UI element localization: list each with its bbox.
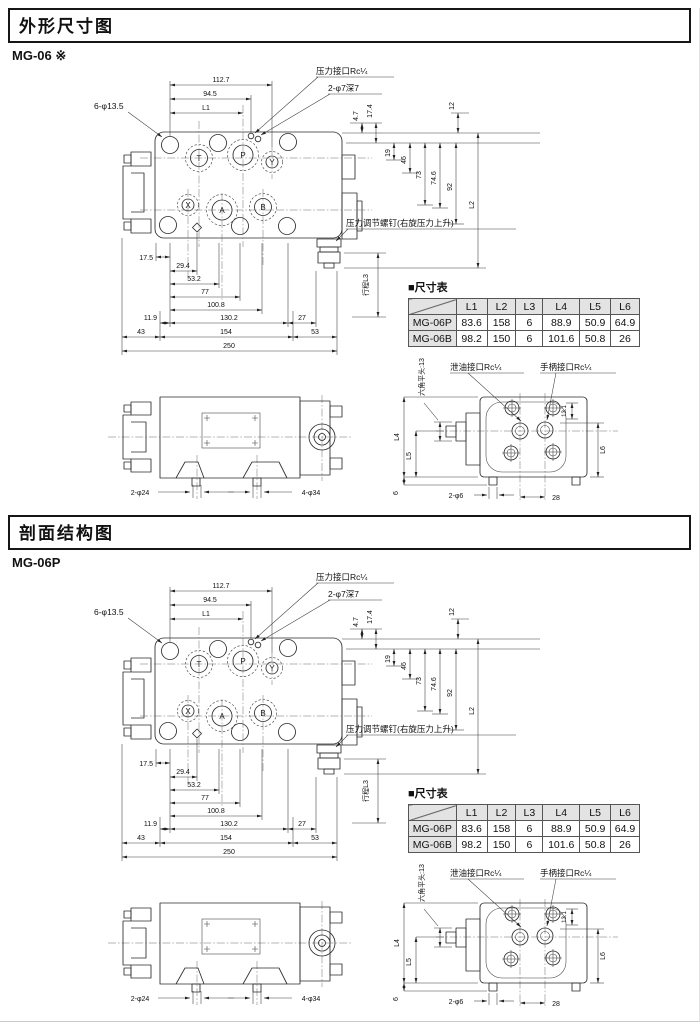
dim-L1: L1 (202, 611, 210, 618)
gasket-pattern (202, 919, 260, 954)
dim-L1: L1 (202, 105, 210, 112)
gasket-pattern (202, 413, 260, 448)
adjust-screw-label: 压力调节螺钉(右旋压力上升) (346, 218, 454, 228)
dim-94-5: 94.5 (203, 91, 217, 98)
table-header-cell: L3 (516, 805, 543, 821)
dim-53: 53 (311, 329, 319, 336)
section-header: 剖面结构图 (8, 515, 691, 550)
top-view: T P Y X A B (123, 638, 362, 774)
dim-27: 27 (298, 315, 306, 322)
table-cell: 64.9 (611, 315, 640, 331)
dim-77: 77 (201, 795, 209, 802)
stroke-label: 行程L3 (361, 274, 370, 296)
table-corner-cell (409, 805, 457, 821)
dim-12: 12 (449, 102, 456, 110)
table-header-row: L1 L2 L3 L4 L5 L6 (409, 805, 640, 821)
dim-46: 46 (401, 156, 408, 164)
end-body-outline (480, 397, 587, 477)
port-label-a: A (219, 712, 225, 721)
table-cell: 83.6 (456, 315, 487, 331)
dim-43: 43 (137, 835, 145, 842)
tap-holes-label: 2-φ7深7 (328, 589, 359, 599)
dim-29-4: 29.4 (176, 263, 190, 270)
adjust-screw-callout: 压力调节螺钉(右旋压力上升) (336, 724, 516, 747)
mount-foot (176, 462, 204, 478)
hex-head-label: 六角平头:13 (417, 864, 426, 902)
dim-13-1: 13.1 (562, 405, 568, 417)
mounting-holes (160, 134, 297, 235)
table-cell: 88.9 (543, 315, 580, 331)
dim-12: 12 (449, 608, 456, 616)
dimension-table-block: ■尺寸表 L1 L2 L3 L4 L5 L6 MG-06P 83.6 158 6… (408, 279, 640, 347)
dim-L2: L2 (469, 201, 476, 209)
tap-hole (255, 136, 261, 142)
table-cell: 50.9 (580, 821, 611, 837)
mounting-holes (160, 640, 297, 741)
table-header-cell: L6 (611, 299, 640, 315)
table-cell: 83.6 (456, 821, 487, 837)
dim-130-2: 130.2 (220, 821, 238, 828)
dim-130-2: 130.2 (220, 315, 238, 322)
table-header-row: L1 L2 L3 L4 L5 L6 (409, 299, 640, 315)
dim-92: 92 (447, 183, 454, 191)
dim-94-5: 94.5 (203, 597, 217, 604)
dim-250: 250 (223, 849, 235, 856)
mount-foot (243, 462, 287, 478)
stroke-label: 行程L3 (361, 780, 370, 802)
dim-L2: L2 (469, 707, 476, 715)
tap-hole (248, 133, 254, 139)
dim-46: 46 (401, 662, 408, 670)
handle-port-label: 手柄接口Rc¼ (540, 868, 592, 878)
table-row: MG-06B 98.2 150 6 101.6 50.8 26 (409, 837, 640, 853)
dim-112-7: 112.7 (213, 77, 230, 84)
table-row-header: MG-06P (409, 821, 457, 837)
bottom-dimensions: 17.5 29.4 53.2 77 100.8 11.9 130.2 27 43… (122, 739, 337, 861)
end-view (436, 899, 618, 1008)
table-header-cell: L1 (456, 299, 487, 315)
table-cell: 50.8 (580, 837, 611, 853)
table-cell: 158 (487, 821, 516, 837)
dim-L4: L4 (394, 939, 401, 947)
port-label-a: A (219, 206, 225, 215)
dim-73: 73 (416, 171, 423, 179)
pressure-port-label: 压力接口Rc¼ (316, 66, 368, 76)
dim-L6: L6 (600, 952, 607, 960)
table-row-header: MG-06P (409, 315, 457, 331)
top-view: T P Y X A B (123, 132, 362, 268)
mount-foot (243, 968, 287, 984)
table-cell: 150 (487, 331, 516, 347)
drawing-area: T P Y X A B (0, 571, 700, 1013)
bottom-pin (572, 477, 580, 485)
valve-body-outline (155, 132, 342, 238)
adjust-screw (317, 745, 341, 774)
dim-L5: L5 (406, 958, 413, 966)
adjust-screw (317, 239, 341, 268)
dim-28: 28 (552, 1001, 560, 1008)
table-cell: 98.2 (456, 837, 487, 853)
top-callouts: 6-φ13.5 压力接口Rc¼ 2-φ7深7 (94, 66, 394, 137)
dim-154: 154 (220, 329, 232, 336)
mid-ports (512, 422, 553, 439)
dim-53-2: 53.2 (187, 782, 201, 789)
table-cell: 101.6 (543, 331, 580, 347)
drawing-section: 外形尺寸图 MG-06 ※ (0, 8, 699, 507)
side-view (108, 395, 352, 499)
side-view-callouts: 2-φ24 4-φ34 (131, 485, 321, 498)
dim-53-2: 53.2 (187, 276, 201, 283)
table-cell: 64.9 (611, 821, 640, 837)
feet-large-label: 4-φ34 (302, 490, 321, 497)
table-header-cell: L1 (456, 805, 487, 821)
end-screw (446, 413, 480, 465)
pressure-port-label: 压力接口Rc¼ (316, 572, 368, 582)
dim-250: 250 (223, 343, 235, 350)
dim-4-7: 4.7 (353, 617, 360, 627)
port-label-x: X (185, 201, 191, 210)
table-cell: 6 (516, 331, 543, 347)
table-header-cell: L5 (580, 805, 611, 821)
dim-100-8: 100.8 (207, 302, 225, 309)
table-corner-cell (409, 299, 457, 315)
end-body-outline (480, 903, 587, 983)
dim-28: 28 (552, 495, 560, 502)
table-cell: 50.8 (580, 331, 611, 347)
dim-17-4: 17.4 (367, 104, 374, 118)
table-cell: 6 (516, 837, 543, 853)
end-view (436, 393, 618, 502)
bottom-pin (572, 983, 580, 991)
right-dimensions: 4.7 17.4 12 19 46 73 74.6 92 L2 (342, 608, 540, 774)
end-screw (446, 919, 480, 971)
right-dimensions: 4.7 17.4 12 19 46 73 74.6 92 L2 (342, 102, 540, 268)
dim-73: 73 (416, 677, 423, 685)
table-row-header: MG-06B (409, 837, 457, 853)
table-row: MG-06B 98.2 150 6 101.6 50.8 26 (409, 331, 640, 347)
port-label-x: X (185, 707, 191, 716)
dim-13-1: 13.1 (562, 911, 568, 923)
pin-small-label: 2-φ6 (449, 999, 464, 1006)
tap-hole (248, 639, 254, 645)
table-header-cell: L6 (611, 805, 640, 821)
dim-19: 19 (385, 149, 392, 157)
adjust-screw-label: 压力调节螺钉(右旋压力上升) (346, 724, 454, 734)
table-cell: 26 (611, 837, 640, 853)
feet-small-label: 2-φ24 (131, 490, 150, 497)
handle-port-label: 手柄接口Rc¼ (540, 362, 592, 372)
dim-112-7: 112.7 (213, 583, 230, 590)
section-header: 外形尺寸图 (8, 8, 691, 43)
model-code: MG-06P (12, 555, 699, 570)
pin-small-label: 2-φ6 (449, 493, 464, 500)
dim-17-5: 17.5 (139, 761, 153, 768)
bottom-pin (489, 983, 497, 991)
table-cell: 6 (516, 821, 543, 837)
top-callouts: 6-φ13.5 压力接口Rc¼ 2-φ7深7 (94, 572, 394, 643)
table-cell: 98.2 (456, 331, 487, 347)
table-cell: 6 (516, 315, 543, 331)
table-cell: 158 (487, 315, 516, 331)
tap-holes-label: 2-φ7深7 (328, 83, 359, 93)
locating-pin (193, 223, 202, 232)
dim-L6: L6 (600, 446, 607, 454)
end-view-callouts: 泄油接口Rc¼ 手柄接口Rc¼ 六角平头:13 L4 L5 6 L6 (393, 864, 616, 1008)
side-view (108, 901, 352, 1005)
dimension-table-block: ■尺寸表 L1 L2 L3 L4 L5 L6 MG-06P 83.6 158 6… (408, 785, 640, 853)
tap-hole (255, 642, 261, 648)
dim-74-6: 74.6 (431, 677, 438, 691)
dim-L4: L4 (394, 433, 401, 441)
drawing-section: 剖面结构图 MG-06P (0, 515, 699, 1013)
mount-foot (176, 968, 204, 984)
table-header-cell: L3 (516, 299, 543, 315)
bottom-dimensions: 17.5 29.4 53.2 77 100.8 11.9 130.2 27 43… (122, 233, 337, 355)
dim-11-9: 11.9 (144, 315, 157, 322)
dimension-table: L1 L2 L3 L4 L5 L6 MG-06P 83.6 158 6 88.9… (408, 804, 640, 853)
section-title: 剖面结构图 (19, 519, 680, 544)
dimension-table: L1 L2 L3 L4 L5 L6 MG-06P 83.6 158 6 88.9… (408, 298, 640, 347)
dim-17-4: 17.4 (367, 610, 374, 624)
table-header-cell: L4 (543, 299, 580, 315)
drawing-area: T P Y X A B (0, 65, 700, 507)
dim-11-9: 11.9 (144, 821, 157, 828)
section-title: 外形尺寸图 (19, 12, 680, 37)
stroke-dimension: 行程L3 (344, 253, 386, 317)
hex-head-label: 六角平头:13 (417, 358, 426, 396)
feet-large-label: 4-φ34 (302, 996, 321, 1003)
dim-154: 154 (220, 835, 232, 842)
dim-77: 77 (201, 289, 209, 296)
table-header-cell: L2 (487, 805, 516, 821)
side-view-callouts: 2-φ24 4-φ34 (131, 991, 321, 1004)
valve-body-outline (155, 638, 342, 744)
port-label-y: Y (269, 664, 275, 673)
feet-small-label: 2-φ24 (131, 996, 150, 1003)
dim-19: 19 (385, 655, 392, 663)
locating-pin (193, 729, 202, 738)
table-cell: 26 (611, 331, 640, 347)
dim-74-6: 74.6 (431, 171, 438, 185)
dim-53: 53 (311, 835, 319, 842)
dim-4-7: 4.7 (353, 111, 360, 121)
adjust-screw-callout: 压力调节螺钉(右旋压力上升) (336, 218, 516, 241)
table-cell: 50.9 (580, 315, 611, 331)
bottom-pin (489, 477, 497, 485)
dim-17-5: 17.5 (139, 255, 153, 262)
stroke-dimension: 行程L3 (344, 759, 386, 823)
model-code: MG-06 ※ (12, 48, 699, 64)
dim-6: 6 (393, 491, 400, 495)
catalog-page: 外形尺寸图 MG-06 ※ (0, 8, 699, 1013)
dim-100-8: 100.8 (207, 808, 225, 815)
table-header-cell: L5 (580, 299, 611, 315)
table-cell: 150 (487, 837, 516, 853)
table-cell: 88.9 (543, 821, 580, 837)
drain-port-label: 泄油接口Rc¼ (450, 362, 502, 372)
dim-92: 92 (447, 689, 454, 697)
drain-port-label: 泄油接口Rc¼ (450, 868, 502, 878)
table-header-cell: L4 (543, 805, 580, 821)
side-body-outline (160, 397, 300, 478)
dimension-table-title: ■尺寸表 (408, 279, 640, 295)
table-row-header: MG-06B (409, 331, 457, 347)
dim-6: 6 (393, 997, 400, 1001)
table-row: MG-06P 83.6 158 6 88.9 50.9 64.9 (409, 315, 640, 331)
bolt-holes-label: 6-φ13.5 (94, 101, 124, 111)
bolt-holes-label: 6-φ13.5 (94, 607, 124, 617)
dim-27: 27 (298, 821, 306, 828)
dimension-table-title: ■尺寸表 (408, 785, 640, 801)
dim-L5: L5 (406, 452, 413, 460)
table-header-cell: L2 (487, 299, 516, 315)
side-body-outline (160, 903, 300, 984)
dim-43: 43 (137, 329, 145, 336)
port-label-y: Y (269, 158, 275, 167)
dim-29-4: 29.4 (176, 769, 190, 776)
mid-ports (512, 928, 553, 945)
end-view-callouts: 泄油接口Rc¼ 手柄接口Rc¼ 六角平头:13 L4 L5 6 L6 (393, 358, 616, 502)
table-cell: 101.6 (543, 837, 580, 853)
table-row: MG-06P 83.6 158 6 88.9 50.9 64.9 (409, 821, 640, 837)
